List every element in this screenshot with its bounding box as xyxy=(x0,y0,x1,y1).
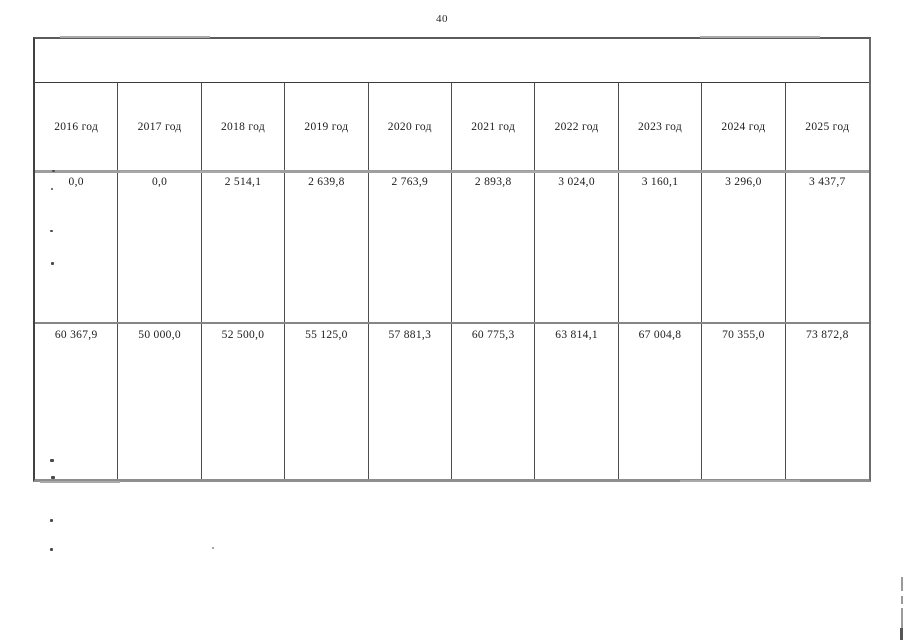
table-cell: 3 024,0 xyxy=(535,173,618,322)
table-cell: 63 814,1 xyxy=(535,324,618,479)
scan-artifact-dot xyxy=(52,170,55,172)
table-cell: 0,0 xyxy=(35,173,118,322)
scan-artifact-smudge xyxy=(500,171,680,173)
scan-artifact-dot xyxy=(50,459,54,462)
scan-artifact-dot xyxy=(212,547,214,549)
table-cell: 57 881,3 xyxy=(369,324,452,479)
table-cell: 70 355,0 xyxy=(702,324,785,479)
column-header-2019: 2019 год xyxy=(285,83,368,170)
scan-artifact-smudge xyxy=(40,481,120,483)
table-cell: 50 000,0 xyxy=(118,324,201,479)
scan-artifact-dot xyxy=(51,188,53,190)
table-cell: 2 514,1 xyxy=(202,173,285,322)
page-edge-mark xyxy=(901,577,903,591)
page-edge-mark xyxy=(901,608,903,628)
table-cell: 2 639,8 xyxy=(285,173,368,322)
data-table: 2016 год 2017 год 2018 год 2019 год 2020… xyxy=(33,37,871,482)
table-cell: 0,0 xyxy=(118,173,201,322)
column-header-2024: 2024 год xyxy=(702,83,785,170)
table-cell: 3 160,1 xyxy=(619,173,702,322)
scan-artifact-smudge xyxy=(680,480,800,482)
table-header-band xyxy=(35,39,869,83)
table-row: 60 367,9 50 000,0 52 500,0 55 125,0 57 8… xyxy=(35,324,869,479)
scanned-document-page: { "page": { "number": "40" }, "table": {… xyxy=(0,0,905,640)
table-header-row: 2016 год 2017 год 2018 год 2019 год 2020… xyxy=(35,83,869,173)
scan-artifact-smudge xyxy=(700,36,820,38)
table-cell: 3 296,0 xyxy=(702,173,785,322)
column-header-2017: 2017 год xyxy=(118,83,201,170)
scan-artifact-dot xyxy=(50,519,53,522)
scan-artifact-dot xyxy=(51,476,55,479)
table-cell: 67 004,8 xyxy=(619,324,702,479)
column-header-2023: 2023 год xyxy=(619,83,702,170)
scan-artifact-dot xyxy=(50,548,53,551)
column-header-2018: 2018 год xyxy=(202,83,285,170)
table-cell: 3 437,7 xyxy=(786,173,869,322)
page-number: 40 xyxy=(436,13,448,25)
scan-artifact-dot xyxy=(50,230,53,232)
column-header-2021: 2021 год xyxy=(452,83,535,170)
table-cell: 73 872,8 xyxy=(786,324,869,479)
column-header-2025: 2025 год xyxy=(786,83,869,170)
table-cell: 60 367,9 xyxy=(35,324,118,479)
page-edge-mark xyxy=(901,596,903,604)
table-cell: 2 763,9 xyxy=(369,173,452,322)
column-header-2020: 2020 год xyxy=(369,83,452,170)
column-header-2016: 2016 год xyxy=(35,83,118,170)
scan-artifact-smudge xyxy=(120,171,280,173)
table-cell: 52 500,0 xyxy=(202,324,285,479)
column-header-2022: 2022 год xyxy=(535,83,618,170)
table-cell: 55 125,0 xyxy=(285,324,368,479)
scan-artifact-smudge xyxy=(60,36,210,38)
table-cell: 60 775,3 xyxy=(452,324,535,479)
scan-artifact-dot xyxy=(51,262,54,265)
page-edge-mark xyxy=(900,628,903,640)
table-cell: 2 893,8 xyxy=(452,173,535,322)
table-row: 0,0 0,0 2 514,1 2 639,8 2 763,9 2 893,8 … xyxy=(35,173,869,324)
